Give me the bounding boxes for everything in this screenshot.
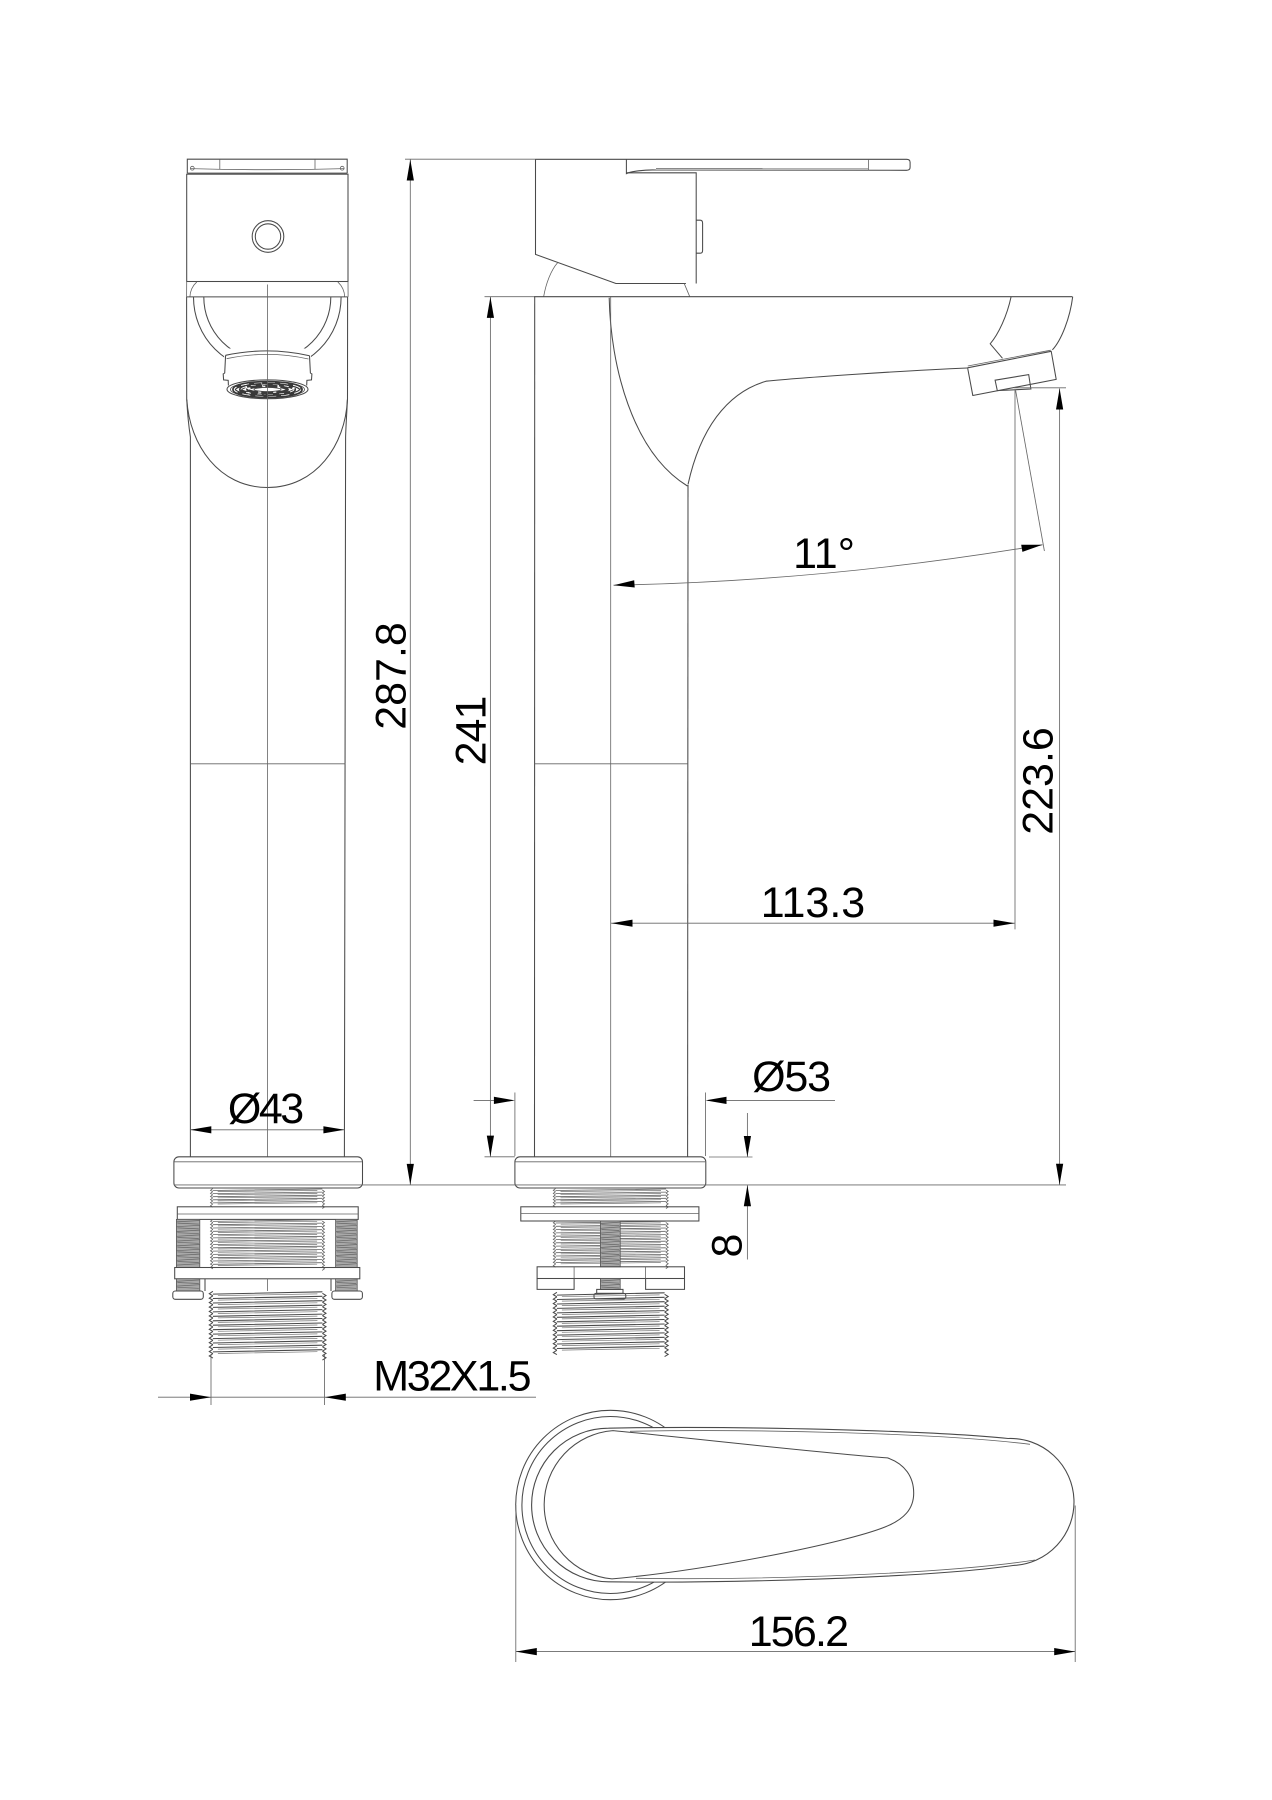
svg-text:113.3: 113.3 — [761, 879, 865, 927]
svg-text:Ø53: Ø53 — [752, 1053, 830, 1101]
svg-text:156.2: 156.2 — [749, 1608, 848, 1656]
svg-text:11°: 11° — [793, 530, 855, 578]
svg-text:241: 241 — [447, 697, 495, 766]
svg-text:8: 8 — [704, 1234, 752, 1258]
svg-text:287.8: 287.8 — [368, 622, 416, 730]
svg-text:M32X1.5: M32X1.5 — [373, 1353, 530, 1401]
svg-text:Ø43: Ø43 — [228, 1085, 303, 1133]
svg-text:223.6: 223.6 — [1015, 727, 1063, 835]
